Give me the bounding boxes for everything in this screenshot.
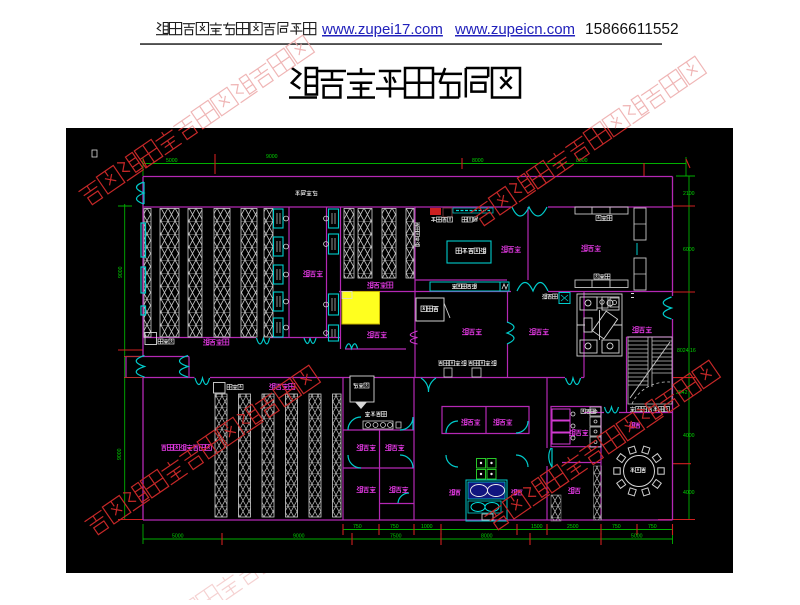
svg-text:9000: 9000 bbox=[266, 154, 278, 160]
svg-text:750: 750 bbox=[390, 524, 399, 530]
svg-text:5000: 5000 bbox=[166, 158, 178, 164]
svg-text:8000: 8000 bbox=[481, 534, 493, 540]
svg-text:5000: 5000 bbox=[172, 534, 184, 540]
svg-text:1500: 1500 bbox=[531, 524, 543, 530]
svg-text:4000: 4000 bbox=[683, 433, 695, 439]
svg-text:9000: 9000 bbox=[118, 266, 124, 278]
svg-text:2500: 2500 bbox=[567, 524, 579, 530]
svg-text:www.zupei17.com: www.zupei17.com bbox=[321, 21, 443, 38]
svg-text:9000: 9000 bbox=[293, 534, 305, 540]
svg-text:9000: 9000 bbox=[117, 448, 123, 460]
svg-text:750: 750 bbox=[648, 524, 657, 530]
svg-text:8000: 8000 bbox=[472, 158, 484, 164]
svg-text:1000: 1000 bbox=[421, 524, 433, 530]
svg-text:www.zupeicn.com: www.zupeicn.com bbox=[454, 21, 575, 38]
svg-text:8024.16: 8024.16 bbox=[677, 348, 696, 354]
svg-text:7500: 7500 bbox=[390, 534, 402, 540]
svg-text:6000: 6000 bbox=[683, 247, 695, 253]
svg-text:15866611552: 15866611552 bbox=[585, 21, 679, 38]
svg-text:750: 750 bbox=[353, 524, 362, 530]
svg-text:5000: 5000 bbox=[631, 534, 643, 540]
svg-text:750: 750 bbox=[612, 524, 621, 530]
svg-text:2100: 2100 bbox=[683, 191, 695, 197]
svg-text:4000: 4000 bbox=[683, 490, 695, 496]
